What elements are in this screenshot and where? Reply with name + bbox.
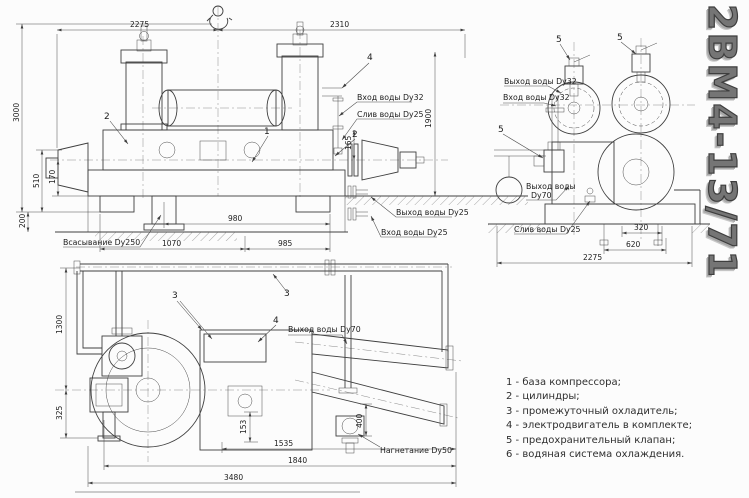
legend-item-6: 6 - водяная система охлаждения. (506, 448, 744, 462)
front-labels: Вход воды Dy32 Слив воды Dy25 Выход воды… (63, 53, 469, 247)
callout-3-cooler: 3 (172, 291, 178, 301)
dim-170: 170 (48, 169, 57, 184)
lifting-hook-icon (207, 6, 232, 29)
legend-item-1: 1 - база компрессора; (506, 376, 744, 390)
side-machine-linework (488, 43, 710, 246)
callout-2-left: 2 (104, 112, 110, 122)
label-water-drain-25-side: Слив воды Dy25 (514, 225, 581, 234)
dim-325: 325 (55, 405, 64, 420)
dim-153: 153 (239, 419, 248, 434)
callout-5-left-valve: 5 (556, 35, 562, 45)
label-water-out-70-line2: Dy70 (531, 191, 552, 200)
dim-510: 510 (32, 173, 41, 188)
label-water-out-25: Выход воды Dy25 (396, 208, 469, 217)
legend-item-5: 5 - предохранительный клапан; (506, 434, 744, 448)
dim-400: 400 (355, 413, 364, 428)
dim-1300: 1300 (55, 315, 64, 334)
drawing-sheet: 2275 2310 3000 1900 165 510 170 200 980 … (0, 0, 749, 498)
label-suction: Всасывание Dy250 (63, 238, 140, 247)
parts-legend: 1 - база компрессора; 2 - цилиндры; 3 - … (506, 376, 744, 462)
dim-980: 980 (228, 214, 243, 223)
dim-985: 985 (278, 239, 293, 248)
side-centerlines (500, 38, 695, 240)
callout-1-base: 1 (264, 127, 270, 137)
callout-3-pipe: 3 (284, 289, 290, 299)
label-discharge: Нагнетание Dy50 (380, 446, 452, 455)
dim-3480: 3480 (224, 473, 243, 482)
front-centerlines (50, 6, 448, 200)
front-view: 2275 2310 3000 1900 165 510 170 200 980 … (12, 6, 528, 252)
plan-machine-linework (90, 330, 453, 453)
callout-2-right: 2 (352, 130, 358, 140)
legend-item-2: 2 - цилиндры; (506, 390, 744, 404)
label-water-drain-25-front: Слив воды Dy25 (357, 110, 424, 119)
dim-2275-front: 2275 (130, 20, 149, 29)
label-water-in-32-side: Вход воды Dy32 (503, 93, 570, 102)
dim-1535: 1535 (274, 439, 293, 448)
dim-320: 320 (634, 223, 649, 232)
dim-200: 200 (18, 213, 27, 228)
callout-5-right-valve: 5 (617, 33, 623, 43)
callout-5-lower-valve: 5 (498, 125, 504, 135)
legend-item-3: 3 - промежуточный охладитель; (506, 405, 744, 419)
callout-4-motor: 4 (273, 316, 279, 326)
dim-1070: 1070 (162, 239, 181, 248)
dim-620: 620 (626, 240, 641, 249)
label-water-in-32-front: Вход воды Dy32 (357, 93, 424, 102)
dim-2310: 2310 (330, 20, 349, 29)
plan-view: 1300 325 153 400 1535 1840 3480 Выхо (55, 260, 462, 487)
label-water-out-70-plan: Выход воды Dy70 (288, 325, 361, 334)
dim-2275-side: 2275 (583, 253, 602, 262)
model-designation: 2ВМ4-13/71 (700, 4, 744, 279)
plan-piping (74, 260, 448, 393)
label-water-out-32: Выход воды Dy32 (504, 77, 577, 86)
dim-1900: 1900 (424, 109, 433, 128)
dim-3000: 3000 (12, 103, 21, 122)
callout-4-upper: 4 (367, 53, 373, 63)
dim-1840: 1840 (288, 456, 307, 465)
label-water-in-25: Вход воды Dy25 (381, 228, 448, 237)
legend-item-4: 4 - электродвигатель в комплекте; (506, 419, 744, 433)
side-view: 320 620 2275 Выход воды Dy32 Вход воды D… (488, 33, 710, 267)
